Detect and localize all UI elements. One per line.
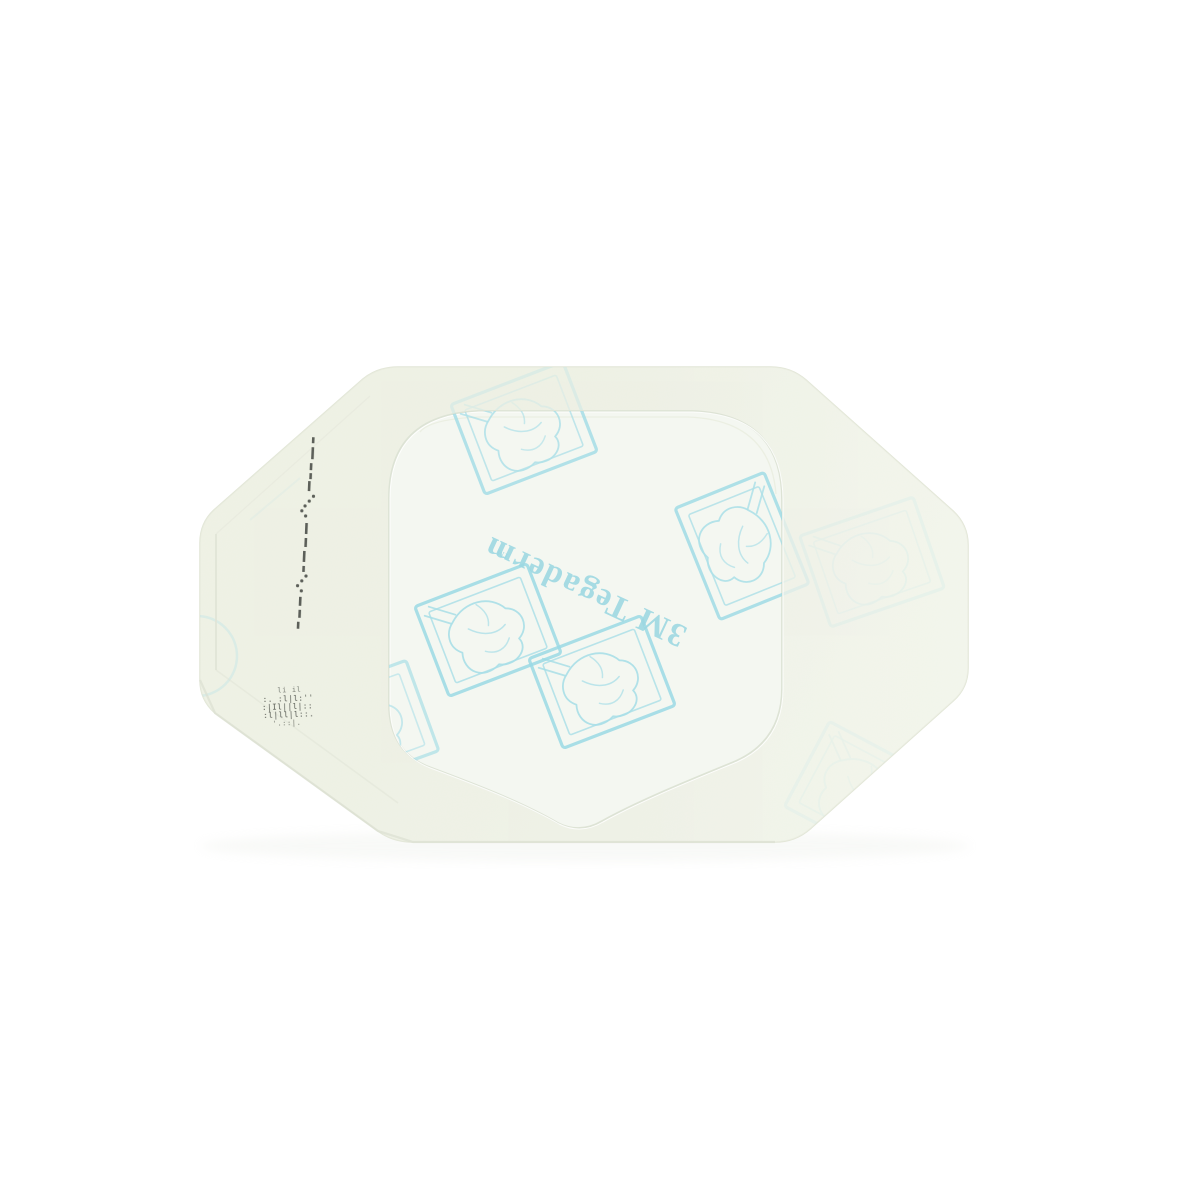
product-photo-stage: 3M Tegaderm ™ li il :. :l|l:'' [0, 0, 1200, 1200]
microprint-row: '.::|. [272, 719, 301, 728]
tegaderm-dressing-photo: 3M Tegaderm ™ li il :. :l|l:'' [0, 0, 1200, 1200]
